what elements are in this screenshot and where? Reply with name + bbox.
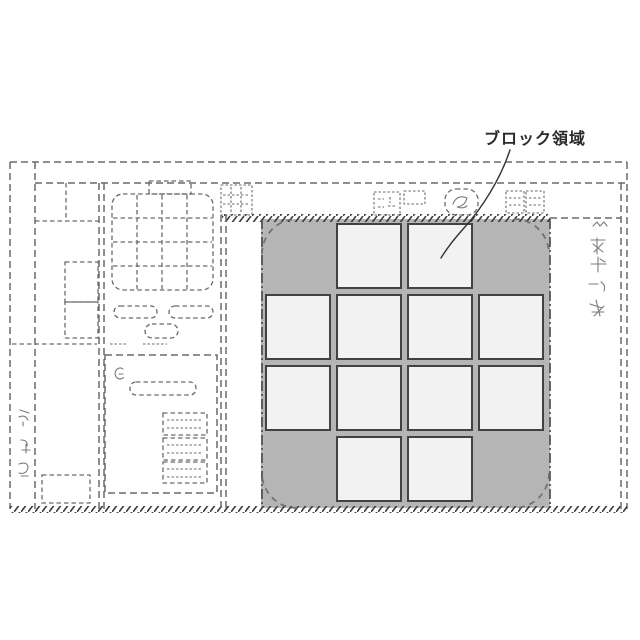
block-region-outline (262, 219, 550, 508)
lined-box (163, 413, 207, 435)
lined-box (163, 462, 207, 483)
layout-linework (0, 0, 640, 640)
left-margin-column (12, 162, 99, 509)
corner-arc (262, 473, 297, 508)
pill-field (169, 306, 213, 318)
bottom-left-box (42, 475, 90, 503)
stamp-grid (112, 181, 213, 290)
handwritten-mark (115, 368, 123, 379)
corner-arc (262, 219, 297, 254)
text-area (105, 355, 217, 493)
corner-arc (514, 219, 549, 254)
bottom-hatched-border (10, 506, 627, 513)
header-band-boxes (374, 189, 544, 215)
figure-canvas: ブロック領域 (0, 0, 640, 640)
marginalia-left (19, 410, 30, 476)
pill-field (130, 382, 196, 395)
pill-field (114, 306, 157, 318)
pill-field (145, 324, 178, 338)
label-leader-line (441, 150, 510, 258)
lined-box-small (506, 191, 544, 213)
lined-box (163, 438, 207, 460)
mini-table (221, 185, 252, 215)
left-column-cell (65, 302, 98, 338)
corner-arc (514, 473, 549, 508)
left-column-cell (65, 262, 98, 302)
stamp-blob (445, 189, 478, 215)
center-column (99, 183, 252, 509)
header-band-lines (35, 183, 627, 509)
block-region-label: ブロック領域 (484, 125, 604, 149)
marginalia-right (589, 222, 607, 316)
